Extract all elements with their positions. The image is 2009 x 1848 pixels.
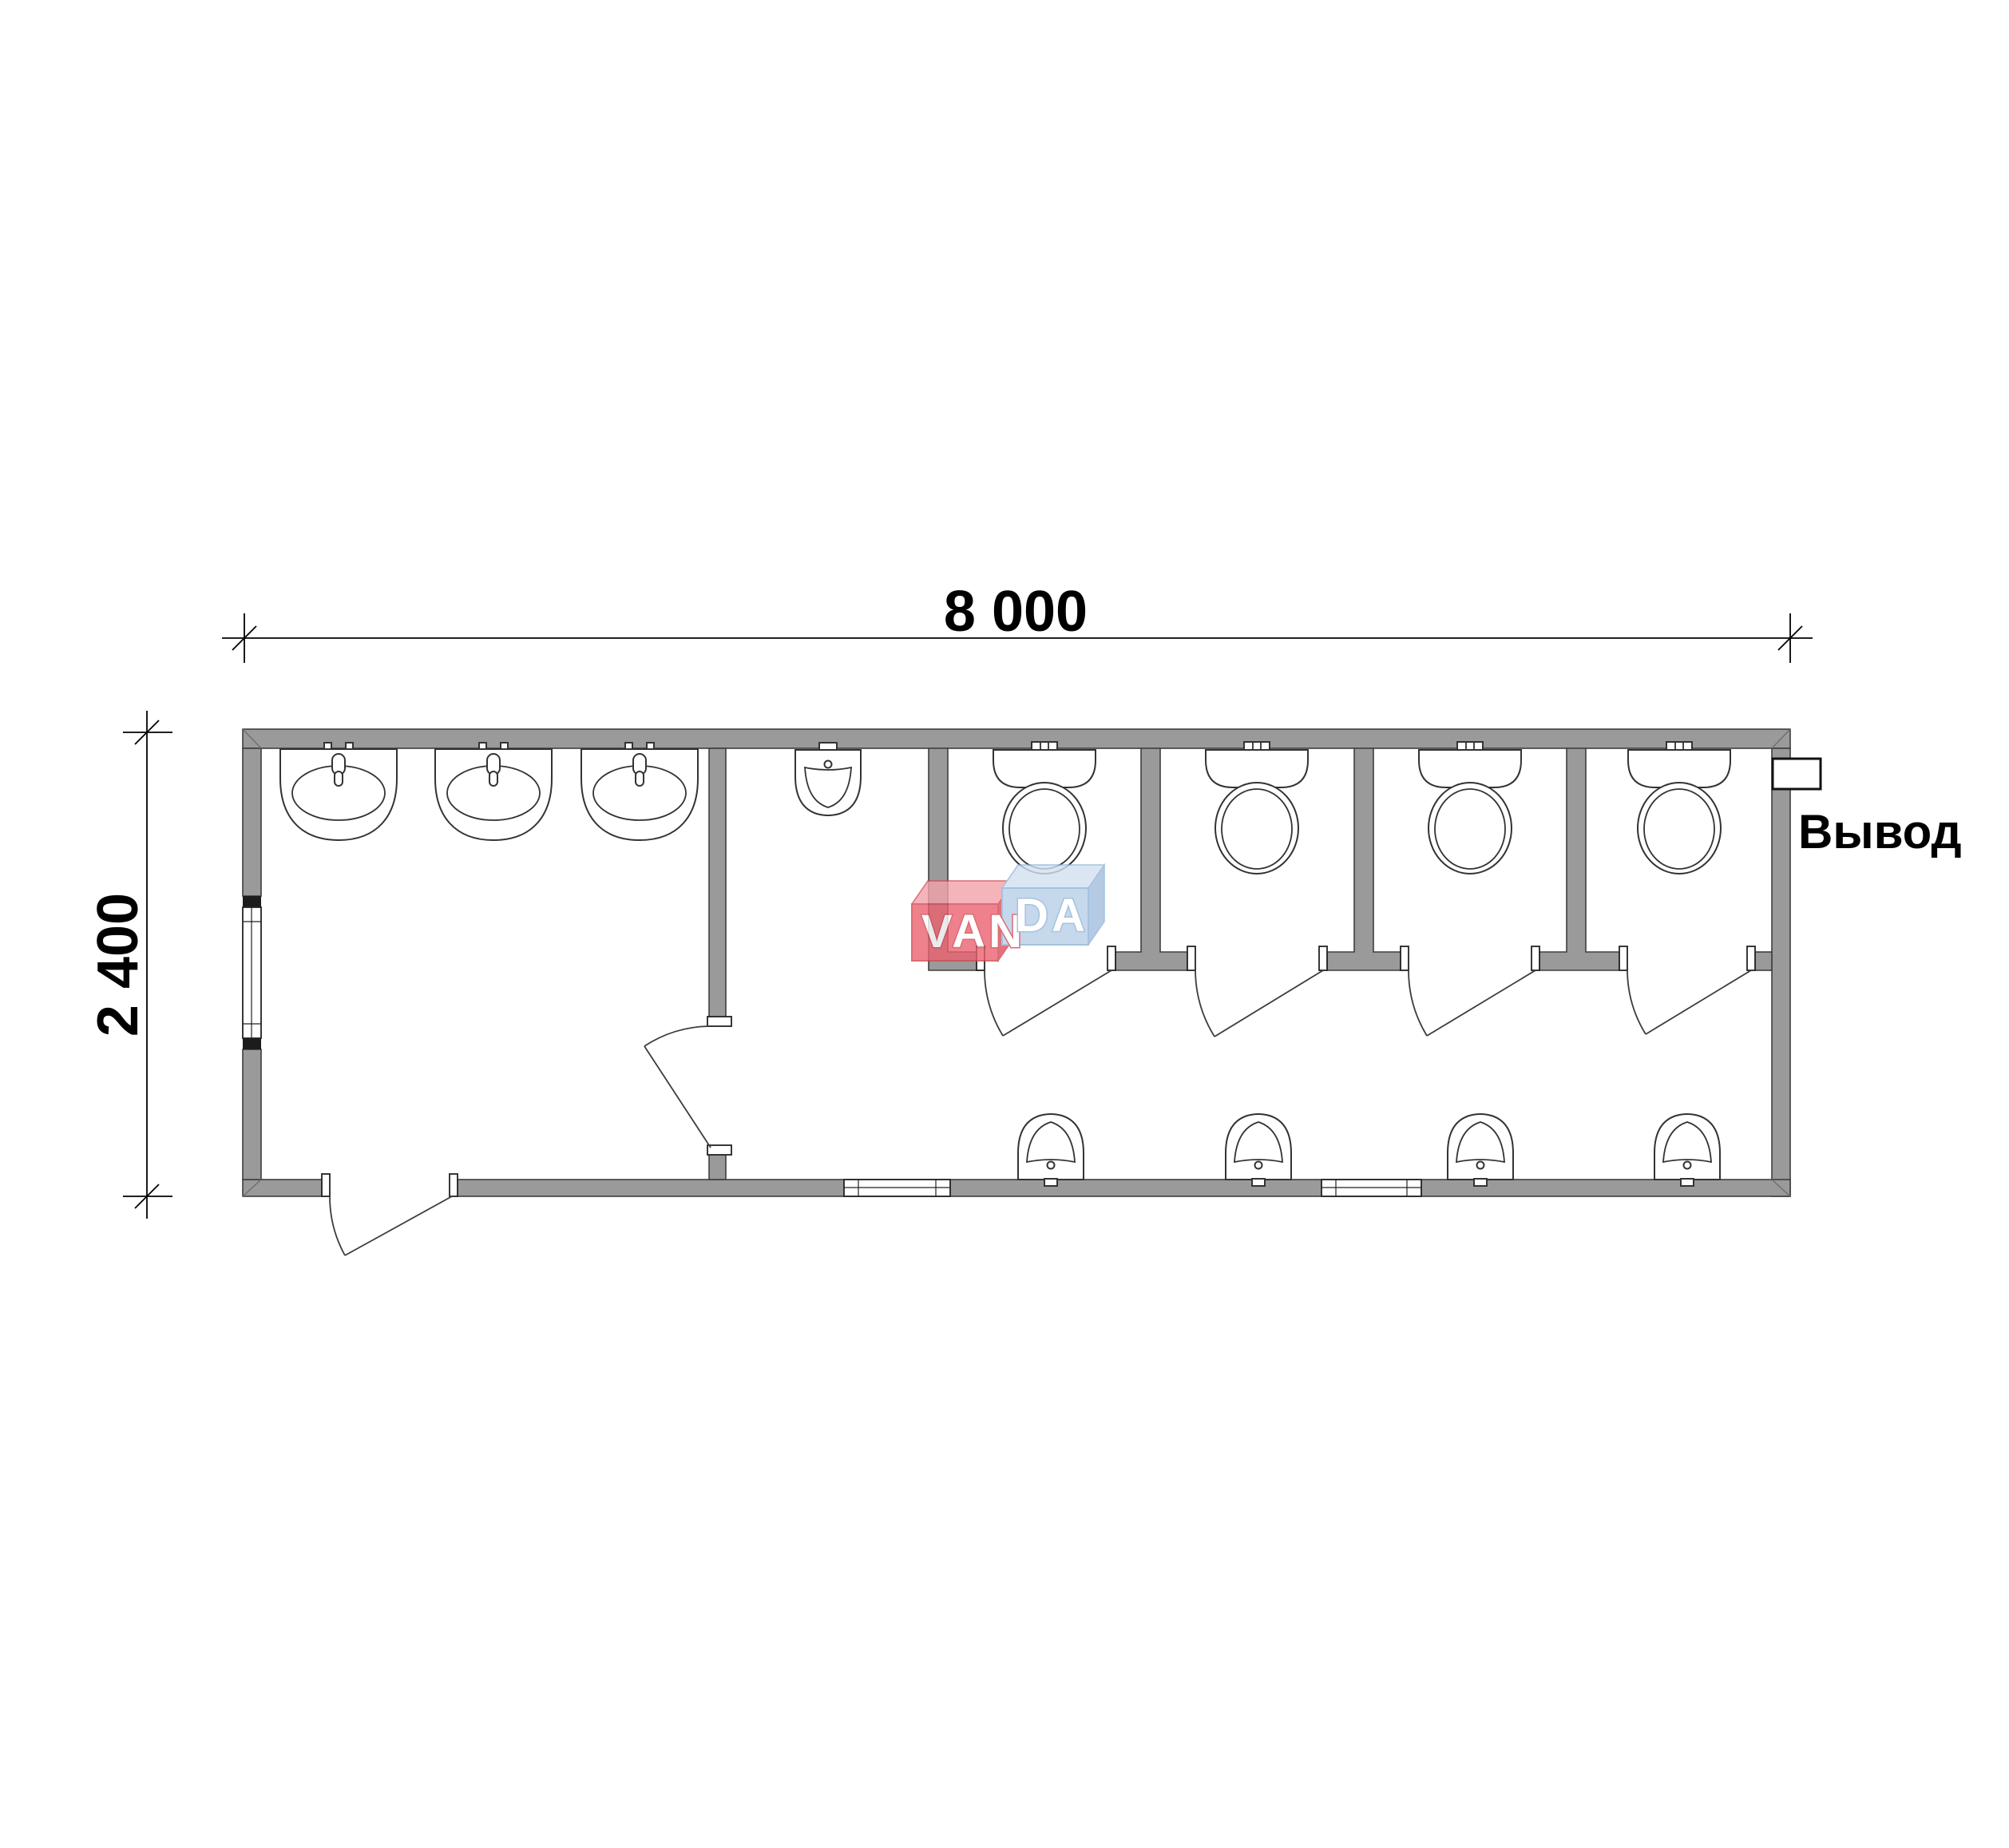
wall-left-lower [243, 1049, 261, 1180]
watermark-blue-top [1002, 865, 1104, 888]
jamb [1532, 946, 1539, 970]
toilet-icon [993, 742, 1096, 874]
jamb [1619, 946, 1627, 970]
partition-stall-3 [1327, 748, 1401, 970]
jamb [1319, 946, 1327, 970]
stall-door-2 [1195, 970, 1323, 1037]
wall-right [1772, 748, 1790, 1196]
jamb [707, 1017, 731, 1026]
wall-bottom [458, 1180, 1790, 1196]
window-bottom-1 [844, 1180, 950, 1196]
outlet-label: Вывод [1798, 805, 1962, 859]
doors [330, 970, 1751, 1255]
jamb [322, 1174, 330, 1196]
dimension-height: 2 400 [86, 711, 172, 1219]
stall-door-3 [1409, 970, 1535, 1036]
jamb [1401, 946, 1409, 970]
wall-left-upper [243, 748, 261, 896]
urinal-icon [795, 743, 861, 815]
partition-stall-2 [1115, 748, 1187, 970]
jamb [450, 1174, 458, 1196]
fixtures [280, 742, 1730, 1186]
partition-washroom [709, 748, 726, 1017]
washbasin-icon [581, 743, 698, 840]
entrance-door [330, 1196, 452, 1255]
dimension-width: 8 000 [222, 580, 1813, 663]
interior-door [644, 1026, 711, 1148]
stall-door-1 [985, 970, 1111, 1036]
partition-stall-end-stub [1755, 952, 1772, 970]
floor-plan-page: 8 000 2 400 [0, 0, 2009, 1844]
partition-stall-4 [1539, 748, 1619, 970]
wall-end-cap [243, 896, 261, 907]
partition-washroom-stub [709, 1152, 726, 1180]
toilet-icon [1419, 742, 1521, 874]
dimension-height-label: 2 400 [86, 893, 150, 1037]
jamb [707, 1145, 731, 1155]
washbasin-icon [280, 743, 397, 840]
wall-urinal-icon [1018, 1114, 1084, 1186]
watermark-red-top [912, 881, 1014, 904]
jamb [1108, 946, 1115, 970]
jamb [1187, 946, 1195, 970]
window-left-wall [243, 907, 261, 1038]
wall-top [243, 729, 1790, 748]
wall-urinal-icon [1448, 1114, 1513, 1186]
watermark-text-left: VAN [921, 906, 1025, 958]
jamb [1747, 946, 1755, 970]
wall-bottom-left [243, 1180, 322, 1196]
toilet-icon [1628, 742, 1730, 874]
utility-outlet: Вывод [1773, 759, 1962, 859]
toilet-icon [1206, 742, 1308, 874]
outlet-stub [1773, 759, 1821, 789]
dimension-width-label: 8 000 [944, 580, 1088, 644]
watermark-text-right: DA [1015, 890, 1088, 942]
washbasin-icon [435, 743, 552, 840]
wall-urinal-icon [1654, 1114, 1720, 1186]
floor-plan-drawing: 8 000 2 400 [0, 0, 2009, 1844]
window-bottom-2 [1322, 1180, 1421, 1196]
wall-urinal-icon [1226, 1114, 1291, 1186]
wall-end-cap [243, 1038, 261, 1049]
stall-door-4 [1627, 970, 1751, 1034]
